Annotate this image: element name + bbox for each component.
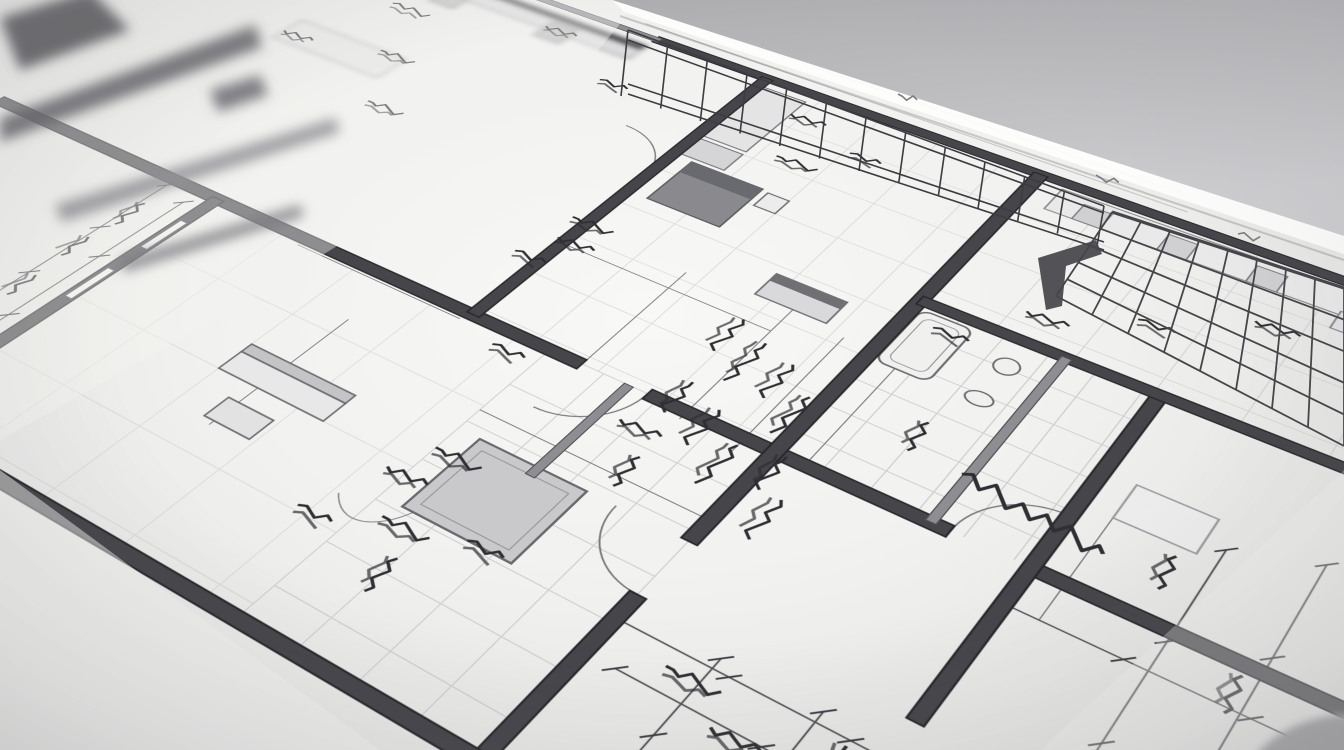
table-slab [402,439,587,563]
scribble [111,202,149,225]
scribble [804,741,839,750]
appliance [429,0,472,9]
scribble-annotations [0,0,1344,750]
blueprint-sheet [0,0,1344,750]
wall-thin [525,383,633,478]
scribble [257,727,297,750]
scribble [1254,318,1302,340]
scribble [261,717,313,750]
window [65,268,114,299]
kitchen-block-blurred [206,0,647,135]
scribble [290,509,323,529]
floor-plan-drawing [0,0,1344,750]
wall [0,97,587,369]
scribble [607,455,645,487]
scribble [693,441,732,476]
scribble [1146,553,1170,581]
sink [989,355,1025,379]
scribble [177,667,220,695]
wall [0,196,224,417]
scribble [595,82,621,93]
scribble [806,743,852,750]
scribble [617,416,663,440]
cabinet-box [1113,485,1219,554]
wall [906,392,1168,726]
toilet [961,387,998,410]
scribble [181,657,237,693]
floor-tile-grids [0,0,1344,750]
wall [1026,562,1344,745]
scribble [1211,672,1236,704]
kitchen-island [273,20,405,78]
dimension-lines [0,0,1344,750]
bedside-table [754,193,790,214]
scribble [365,99,405,117]
scribble [102,611,138,634]
coffee-table [204,397,273,439]
walls [0,0,1344,750]
wall [0,409,485,750]
photo-of-blueprint [0,0,1344,750]
scribble [774,154,819,173]
wall-thin [740,0,1344,149]
scribble [106,602,153,632]
scribble [789,112,827,128]
wall-thin [926,356,1072,524]
tile-grid [0,199,550,618]
scribble [846,156,874,168]
vanity [1330,311,1344,375]
scribble [111,201,140,219]
leader-lines [100,135,1180,750]
